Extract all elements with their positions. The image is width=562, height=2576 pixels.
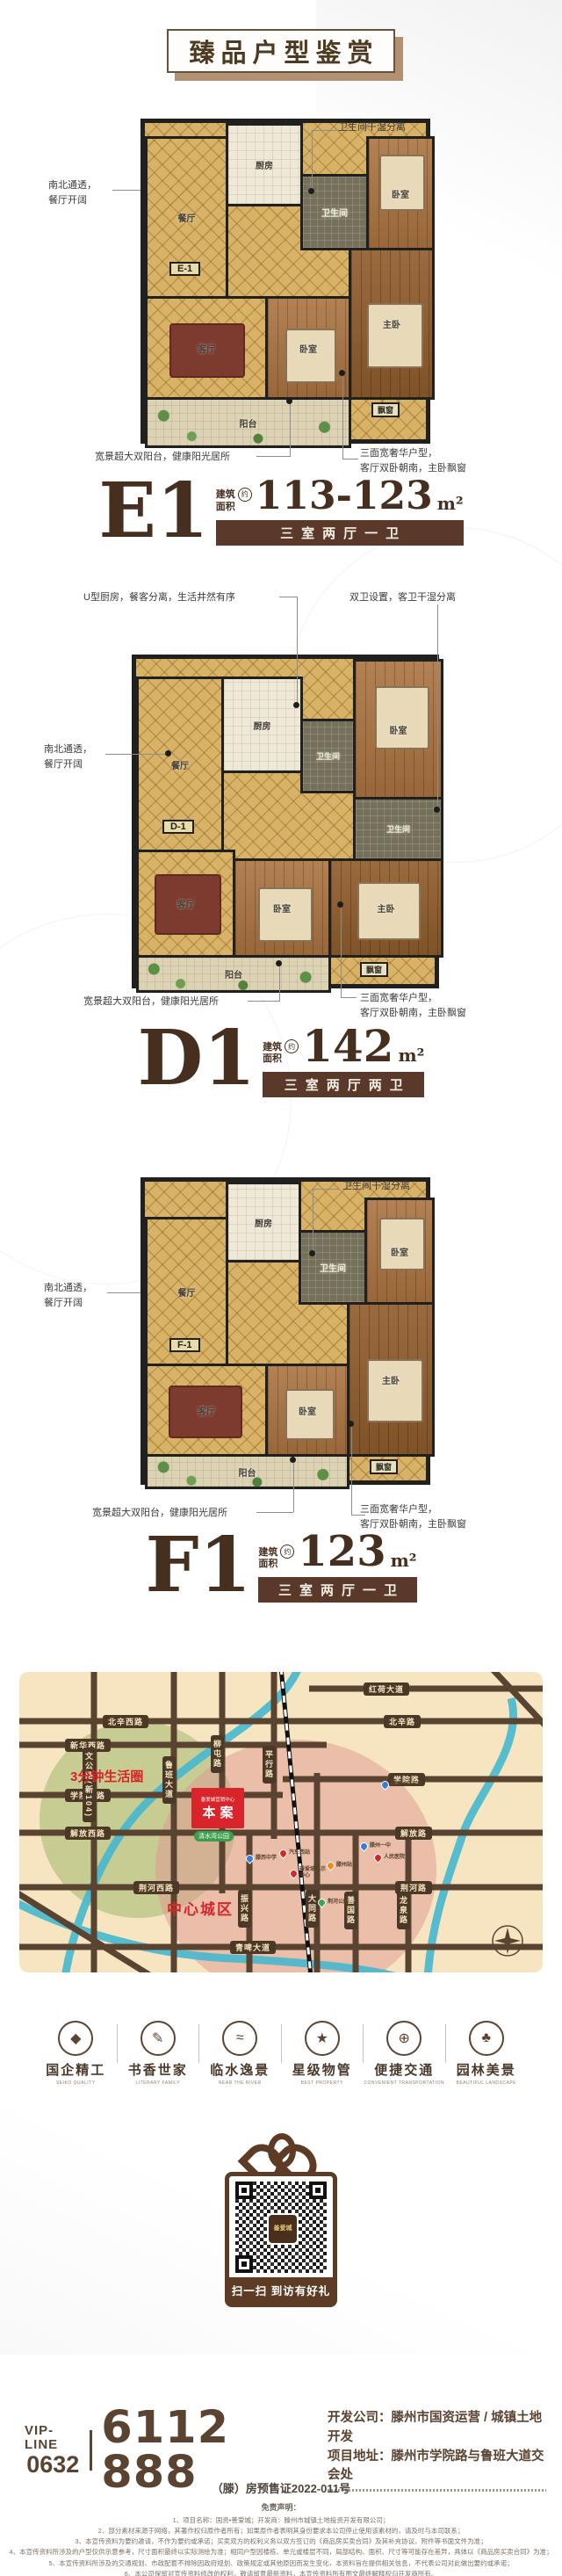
presale-license: （滕）房预售证2022-011号 [0, 2479, 562, 2496]
map-pin-icon [244, 1853, 256, 1864]
area-value: 142 [302, 1026, 393, 1066]
vip-line: VIP-LINE 0632 [25, 2424, 81, 2477]
road-label: 北辛西路 [103, 1715, 148, 1728]
disclaimer-item: 6、本公司保留对宣传资料修改的权利，敬请留意最新资料，本宣传资料所有图文最终解释… [0, 2569, 562, 2576]
area-value: 123 [298, 1533, 385, 1571]
callout-north-south: 南北通透， 餐厅开阔 [44, 1281, 114, 1310]
room-bath-1: 卫生间 [300, 719, 356, 793]
bed [379, 155, 425, 211]
callout-bath-dry-wet: 卫生间干湿分离 [342, 1179, 474, 1194]
area-value: 113-123 [256, 479, 433, 514]
callout-line [341, 908, 342, 997]
plan-label-right: 建筑 面积 约 113-123 m² 三室两厅一卫 [216, 479, 464, 546]
room-label: 卧室 [299, 1404, 316, 1417]
brand-logo: 善爱城 [267, 2213, 299, 2245]
plan-code: E1 [98, 479, 208, 543]
area-caption: 建筑 面积 [216, 489, 235, 514]
poster-page: 臻品户型鉴赏 餐厅 厨房 卫生间 卧室 客厅 卧室 主卧 阳台 [0, 0, 562, 2576]
callout-line [248, 1001, 279, 1002]
callout-three-bay: 三面宽奢华户型， 客厅双卧朝南，主卧飘窗 [360, 446, 501, 475]
poi-label: 汽车西站 [289, 1850, 310, 1856]
area-unit: m² [391, 1550, 417, 1571]
callout-north-south: 南北通透， 餐厅开阔 [48, 178, 119, 207]
road-label: 鲁班大道 [162, 1756, 176, 1804]
disclaimer-item: 4、本宣传资料所涉及的户型仅供示意参考，尺寸面积最终以实际测绘为准；相同户型因楼… [0, 2547, 562, 2558]
room-bedroom: 卧室 [265, 296, 351, 400]
qr-finder [235, 2255, 253, 2273]
bed [367, 1359, 423, 1422]
area-caption-line: 建筑 [216, 489, 235, 502]
star-icon: ★ [305, 2021, 340, 2056]
room-kitchen: 厨房 [226, 1182, 301, 1263]
callout-line [313, 1189, 313, 1252]
map-pin-icon [358, 1841, 370, 1852]
feature-subtitle: SEIKO QUALITY [56, 2080, 96, 2086]
room-label: 卧室 [391, 1245, 408, 1258]
room-label: 主卧 [383, 317, 400, 330]
poi-label: 荆河公园 [328, 1899, 349, 1906]
road-label: 北辛路 [384, 1715, 421, 1728]
plan-label-right: 建筑 面积 约 123 m² 三室两厅一卫 [258, 1533, 416, 1603]
plan-type-bar: 三室两厅一卫 [258, 1577, 416, 1603]
room-label: 卫生间 [320, 1261, 346, 1274]
plan-code: F1 [145, 1533, 251, 1597]
room-label: 厨房 [256, 158, 273, 171]
poi-label: 人民医院 [384, 1855, 405, 1861]
bed [258, 887, 313, 942]
floorplan-d1: 餐厅 厨房 卫生间 卧室 卫生间 客厅 卧室 主卧 阳台 D-1 [132, 655, 439, 988]
callout-dot [309, 1250, 315, 1256]
poi-label: 滕州站 [336, 1863, 352, 1869]
road-label: 振兴路 [238, 1890, 251, 1928]
room-label: 卫生间 [316, 750, 340, 762]
area-unit: m² [398, 1045, 424, 1066]
bow-loop [268, 2133, 296, 2168]
room-balcony: 阳台 [145, 1454, 349, 1489]
road-label: 柳屯路 [211, 1735, 224, 1773]
location-map: 红荷大道 北辛西路 北辛路 新华西路 学院西路 学院路 解放西路 解放路 荆河西… [19, 1672, 543, 1972]
compass-icon [493, 1926, 522, 1956]
feature-item: ◆ 国企精工 SEIKO QUALITY [35, 2021, 117, 2086]
feature-item: ★ 星级物管 BEST PROPERTY [282, 2021, 364, 2086]
room-label: 卧室 [392, 187, 409, 200]
poi-marker: 荆河公园 [318, 1899, 349, 1907]
callout-dot [348, 1421, 354, 1427]
poi-marker: 汽车西站 [279, 1849, 310, 1857]
room-label: 卫生间 [321, 206, 348, 219]
map-pin-icon [325, 1860, 336, 1871]
plan-tag: F-1 [169, 1338, 200, 1352]
feature-label: 书香世家 [128, 2060, 188, 2079]
approx-mark: 约 [280, 1545, 294, 1559]
pen-icon: ✎ [140, 2021, 176, 2056]
room-master: 主卧 [328, 858, 443, 958]
area-caption: 建筑 面积 [263, 1042, 282, 1067]
feature-item: ✎ 书香世家 LITERARY FAMILY [118, 2021, 199, 2086]
callout-line [105, 754, 167, 755]
room-master: 主卧 [349, 248, 435, 400]
room-label: 主卧 [382, 1373, 400, 1386]
callout-line [341, 997, 357, 998]
plan-tag: D-1 [162, 820, 194, 834]
disclaimer-item: 5、本宣传资料所涉及的交通规划、市政配套不排除因政府规划、政策规定或其他原因而发… [0, 2558, 562, 2569]
feature-label: 园林美景 [457, 2060, 516, 2079]
gift-bow-icon [242, 2133, 320, 2174]
road-label: 青啤大道 [230, 1941, 276, 1954]
room-label: 客厅 [177, 897, 195, 910]
room-label: 卫生间 [386, 823, 410, 835]
callout-line [313, 1189, 339, 1190]
plan-area-row: 建筑 面积 约 113-123 m² [216, 479, 464, 514]
legal-block: （滕）房预售证2022-011号 免责声明： 1、项目名称：国资•善爱城；开发商… [0, 2479, 562, 2576]
callout-balcony: 宽景超大双阳台，健康阳光居所 [92, 1506, 259, 1521]
callout-line [312, 130, 336, 131]
map-graphics [19, 1672, 543, 1972]
callout-north-south: 南北通透， 餐厅开阔 [44, 742, 114, 771]
qr-caption: 扫一扫 到访有好礼 [229, 2277, 333, 2303]
room-label: 厨房 [254, 719, 271, 732]
site-label: 本案 [198, 1803, 237, 1821]
callout-u-kitchen: U型厨房，餐客分离，生活井然有序 [83, 590, 285, 605]
site-marker: 善爱城营销中心 本案 [191, 1788, 244, 1828]
room-kitchen: 厨房 [221, 677, 303, 773]
room-bath: 卫生间 [300, 174, 369, 250]
poi-label: 滕州一中东校 [391, 1782, 422, 1788]
room-bedroom: 卧室 [364, 1198, 435, 1305]
room-label: 阳台 [240, 416, 257, 430]
feature-label: 便捷交通 [374, 2060, 434, 2079]
qr-code-box: 善爱城 扫一扫 到访有好礼 [225, 2172, 337, 2307]
wheel-icon: ⊕ [386, 2021, 421, 2056]
room-balcony: 阳台 [145, 397, 351, 448]
room-label: 厨房 [255, 1216, 272, 1229]
bed [375, 686, 429, 749]
room-label: 客厅 [198, 342, 215, 355]
callout-line [351, 1427, 352, 1515]
feature-item: ♣ 园林美景 BEAUTIFUL LANDSCAPE [446, 2021, 528, 2086]
area-code: 0632 [26, 2452, 79, 2477]
feature-label: 临水逸景 [210, 2060, 270, 2079]
map-pin-icon [379, 1779, 391, 1791]
callout-dot [165, 750, 171, 756]
callout-bath-dry-wet: 卫生间干湿分离 [338, 120, 470, 135]
callout-dot [293, 702, 299, 708]
plan-area-row: 建筑 面积 约 123 m² [258, 1533, 416, 1571]
room-label: 餐厅 [178, 1285, 196, 1299]
callout-dot [308, 188, 314, 194]
poi-marker: 人民医院 [374, 1854, 405, 1862]
area-caption-line: 面积 [263, 1053, 282, 1066]
room-bath-2: 卫生间 [353, 797, 443, 861]
plan-label-f1: F1 建筑 面积 约 123 m² 三室两厅一卫 [0, 1533, 562, 1603]
area-caption-line: 面积 [258, 1559, 277, 1571]
room-master: 主卧 [347, 1302, 435, 1457]
bed [285, 329, 336, 383]
room-label: 卧室 [390, 723, 407, 736]
park-label: 清水湾公园 [194, 1831, 234, 1842]
road-label: 大同路 [306, 1890, 319, 1928]
callout-dot [286, 398, 292, 404]
room-label: 阳台 [225, 967, 242, 980]
callout-balcony: 宽景超大双阳台，健康阳光居所 [83, 995, 250, 1009]
feature-label: 星级物管 [292, 2060, 352, 2079]
poi-marker: 滕西中学 [246, 1855, 277, 1863]
area-caption-line: 面积 [216, 502, 235, 514]
feature-subtitle: BEST PROPERTY [301, 2080, 343, 2086]
callout-dot [434, 807, 440, 813]
callout-dot [337, 901, 343, 908]
disclaimer-item: 2、部分素材来源于网络，其著作权归原作者所有；如果原作者表明其身份要求本公司停止… [0, 2526, 562, 2536]
poi-marker: 滕州一中 [360, 1842, 391, 1850]
callout-dot [276, 960, 282, 966]
room-label: 阳台 [239, 1465, 256, 1479]
plan-area-row: 建筑 面积 约 142 m² [263, 1026, 424, 1066]
map-pin-icon [288, 1868, 299, 1879]
callout-two-bath: 双卫设置，客卫干湿分离 [349, 590, 508, 605]
plan-label-e1: E1 建筑 面积 约 113-123 m² 三室两厅一卫 [0, 479, 562, 546]
vip-line-label: VIP-LINE [25, 2424, 81, 2452]
plan-type-bar: 三室两厅一卫 [216, 520, 464, 546]
poi-marker: 善爱城展示中心 [290, 1867, 329, 1879]
poi-marker: 滕州一中东校 [381, 1781, 422, 1789]
road-label: 平行路 [263, 1746, 276, 1784]
callout-line [297, 597, 298, 704]
room-label: 卧室 [299, 342, 317, 355]
area-caption-line: 建筑 [258, 1547, 277, 1559]
feature-subtitle: BEAUTIFUL LANDSCAPE [457, 2080, 517, 2086]
room-bath: 卫生间 [299, 1230, 367, 1305]
tree-icon: ♣ [469, 2021, 504, 2056]
poi-label: 滕西中学 [256, 1856, 277, 1862]
room-living: 客厅 [145, 296, 268, 400]
map-pin-icon [277, 1848, 289, 1859]
poi-label: 善爱城展示中心 [299, 1867, 329, 1879]
road-label: 解放西路 [65, 1827, 111, 1840]
room-bedroom: 卧室 [233, 858, 331, 958]
feature-subtitle: CONVENIENT TRANSPORTATION [364, 2080, 444, 2086]
developer-line: 开发公司：滕州市国资运营 / 城镇土地开发 [328, 2409, 546, 2448]
room-bedroom: 卧室 [353, 659, 443, 800]
callout-line [342, 459, 358, 459]
road-label: 荆河西路 [133, 1881, 179, 1894]
feature-row: ◆ 国企精工 SEIKO QUALITY ✎ 书香世家 LITERARY FAM… [35, 2021, 527, 2086]
floorplan-f1: 餐厅 厨房 卫生间 卧室 客厅 卧室 主卧 阳台 F-1 飘窗 [140, 1177, 430, 1485]
room-label: 餐厅 [178, 211, 196, 224]
road-label: 龙泉路 [397, 1892, 410, 1929]
plan-label-d1: D1 建筑 面积 约 142 m² 三室两厅两卫 [0, 1026, 562, 1097]
plan-tag: E-1 [169, 262, 200, 276]
area-caption: 建筑 面积 [258, 1547, 277, 1572]
divider [90, 2430, 92, 2471]
disclaimer-title: 免责声明： [0, 2501, 562, 2513]
room-bedroom: 卧室 [265, 1364, 349, 1457]
qr-finder [309, 2182, 327, 2199]
approx-mark: 约 [285, 1039, 299, 1053]
callout-line [312, 130, 313, 190]
bed [367, 303, 423, 368]
poi-marker: 滕州站 [327, 1862, 352, 1870]
room-label: 主卧 [378, 901, 395, 915]
callout-line [293, 1463, 294, 1512]
floorplan-e1: 餐厅 厨房 卫生间 卧室 客厅 卧室 主卧 阳台 E-1 飘窗 [140, 119, 430, 444]
room-label: 餐厅 [171, 758, 189, 771]
disclaimer-item: 3、本宣传资料为要约邀请，不作为要约或承诺；买卖双方的权利义务以双方签订的《商品… [0, 2536, 562, 2547]
map-pin-icon [316, 1897, 328, 1908]
bay-window-tag: 飘窗 [371, 402, 400, 417]
bay-window-tag: 飘窗 [360, 962, 388, 977]
callout-line [290, 404, 291, 457]
plan-code: D1 [138, 1026, 256, 1090]
room-living: 客厅 [145, 1364, 268, 1457]
brand-logo-text: 善爱城 [274, 2225, 292, 2232]
callout-line [437, 604, 438, 808]
callout-balcony: 宽景超大双阳台，健康阳光居所 [95, 450, 262, 465]
callout-line [342, 376, 343, 459]
callout-dot [339, 370, 345, 376]
area-unit: m² [437, 493, 464, 514]
area-caption-line: 建筑 [263, 1042, 282, 1054]
road-label: 善国路 [344, 1892, 357, 1929]
feature-item: ≈ 临水逸景 NEAR THE RIVER [199, 2021, 281, 2086]
plan-type-bar: 三室两厅两卫 [263, 1072, 424, 1097]
road-label: 解放路 [395, 1827, 432, 1840]
page-title-box: 臻品户型鉴赏 [167, 29, 395, 73]
callout-line [256, 1512, 293, 1513]
room-balcony: 阳台 [136, 955, 331, 993]
room-kitchen: 厨房 [226, 123, 303, 206]
plan-label-right: 建筑 面积 约 142 m² 三室两厅两卫 [263, 1026, 424, 1097]
approx-mark: 约 [238, 488, 252, 502]
feature-label: 国企精工 [46, 2060, 105, 2079]
page-title: 臻品户型鉴赏 [183, 33, 378, 69]
center-zone-label: 中心城区 [167, 1897, 234, 1919]
water-icon: ≈ [222, 2021, 257, 2056]
map-pin-icon [372, 1852, 384, 1863]
feature-subtitle: NEAR THE RIVER [219, 2080, 262, 2086]
feature-subtitle: LITERARY FAMILY [135, 2080, 180, 2086]
gem-icon: ◆ [58, 2021, 93, 2056]
feature-item: ⊕ 便捷交通 CONVENIENT TRANSPORTATION [364, 2021, 445, 2086]
site-header: 善爱城营销中心 [201, 1796, 235, 1803]
callout-line [279, 966, 280, 1002]
poi-label: 滕州一中 [370, 1843, 391, 1849]
room-living: 客厅 [136, 850, 235, 958]
life-circle-label: 3分钟生活圈 [70, 1767, 143, 1785]
bay-window-tag: 飘窗 [370, 1459, 398, 1474]
callout-dot [290, 1457, 296, 1463]
room-label: 卧室 [273, 901, 291, 915]
room-bedroom: 卧室 [366, 136, 435, 250]
qr-finder [235, 2182, 253, 2199]
disclaimer-item: 1、项目名称：国资•善爱城；开发商：滕州市城镇土地投资开发有限公司； [0, 2515, 562, 2526]
room-label: 客厅 [198, 1404, 215, 1417]
callout-three-bay: 三面宽奢华户型， 客厅双卧朝南，主卧飘窗 [360, 991, 509, 1020]
road-label: 红荷大道 [364, 1682, 409, 1696]
